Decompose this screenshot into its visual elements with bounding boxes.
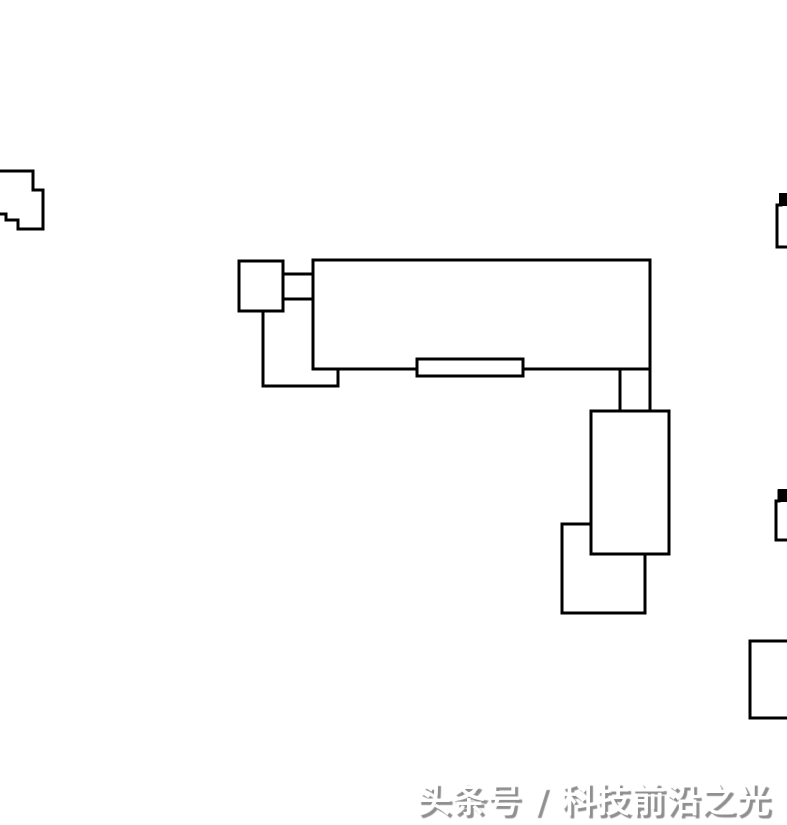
right-middle-tab [778,489,787,502]
right-upper-tab [779,193,787,206]
connector-box [283,274,313,299]
left-edge-partial-outline [0,171,43,229]
watermark-text: 头条号 / 科技前沿之光 [417,773,771,822]
bottom-bar [417,359,523,376]
floorplan-canvas [0,0,787,825]
main-horizontal-block [313,260,650,369]
tall-vertical-block [591,411,669,554]
top-left-square [239,261,283,311]
bottom-right-partial-rect [750,641,787,718]
